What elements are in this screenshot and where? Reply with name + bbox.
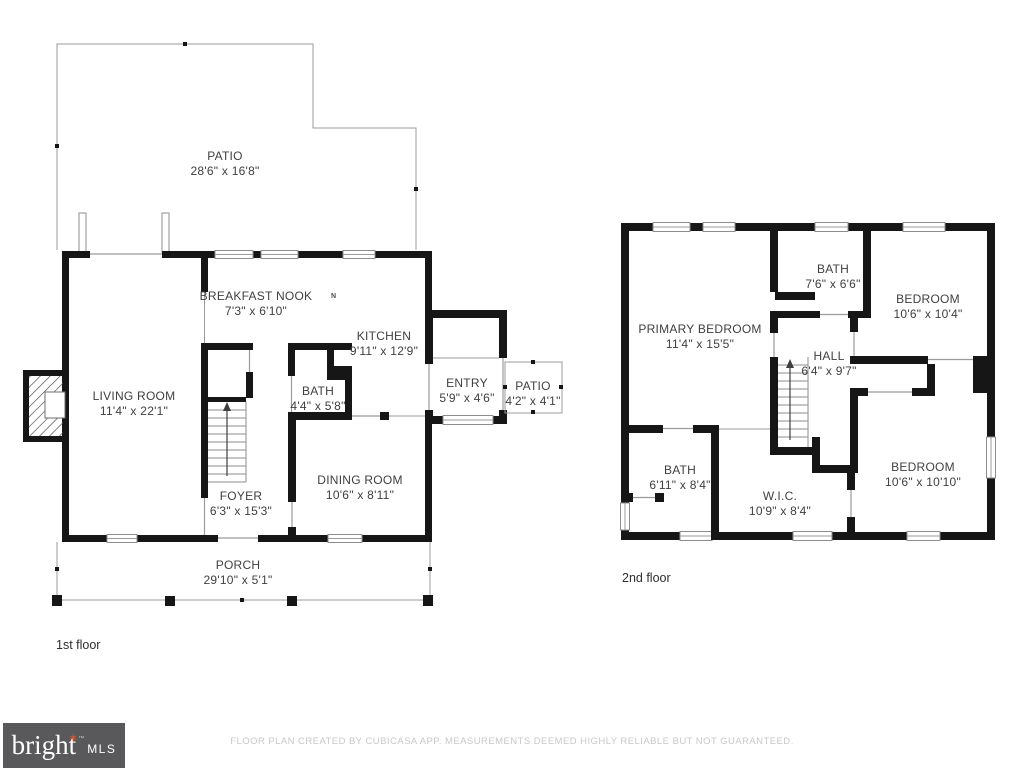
room-name: W.I.C.: [749, 489, 811, 504]
room-name: PORCH: [203, 558, 272, 573]
room-label-patio-small: PATIO 4'2" x 4'1": [505, 379, 560, 409]
room-dims: 6'3" x 15'3": [210, 504, 272, 519]
room-label-dining-room: DINING ROOM 10'6" x 8'11": [317, 473, 402, 503]
room-name: PRIMARY BEDROOM: [638, 322, 761, 337]
room-name: PATIO: [505, 379, 560, 394]
room-label-hall: HALL 6'4" x 9'7": [801, 349, 856, 379]
room-dims: 11'4" x 15'5": [638, 337, 761, 352]
room-label-wic: W.I.C. 10'9" x 8'4": [749, 489, 811, 519]
floor-label-first: 1st floor: [56, 638, 100, 652]
logo-suffix-text: MLS: [87, 742, 116, 756]
room-label-patio-large: PATIO 28'6" x 16'8": [190, 149, 259, 179]
staircase-first-floor: [208, 402, 246, 482]
room-name: PATIO: [190, 149, 259, 164]
room-dims: 6'11" x 8'4": [649, 478, 710, 493]
room-dims: 10'6" x 10'10": [885, 475, 961, 490]
bright-mls-logo: bright ✶ ™ MLS: [3, 723, 125, 768]
room-dims: 7'3" x 6'10": [200, 304, 313, 319]
logo-star-icon: ✶: [68, 731, 78, 745]
room-dims: 10'9" x 8'4": [749, 504, 811, 519]
room-name: HALL: [801, 349, 856, 364]
room-dims: 4'2" x 4'1": [505, 394, 560, 409]
room-dims: 4'4" x 5'8": [290, 399, 345, 414]
room-dims: 5'9" x 4'6": [439, 391, 494, 406]
room-dims: 29'10" x 5'1": [203, 573, 272, 588]
room-label-bath-bottom: BATH 6'11" x 8'4": [649, 463, 710, 493]
room-label-bath-first: BATH 4'4" x 5'8": [290, 384, 345, 414]
room-name: DINING ROOM: [317, 473, 402, 488]
room-name: LIVING ROOM: [93, 389, 176, 404]
room-label-foyer: FOYER 6'3" x 15'3": [210, 489, 272, 519]
floor-label-second: 2nd floor: [622, 571, 671, 585]
room-dims: 28'6" x 16'8": [190, 164, 259, 179]
room-label-primary-bedroom: PRIMARY BEDROOM 11'4" x 15'5": [638, 322, 761, 352]
room-name: BREAKFAST NOOK: [200, 289, 313, 304]
room-name: BATH: [290, 384, 345, 399]
room-dims: 9'11" x 12'9": [350, 344, 418, 359]
room-label-bedroom-bottom: BEDROOM 10'6" x 10'10": [885, 460, 961, 490]
floor-plan-page: PATIO 28'6" x 16'8" BREAKFAST NOOK 7'3" …: [0, 0, 1024, 768]
room-name: FOYER: [210, 489, 272, 504]
room-name: BEDROOM: [885, 460, 961, 475]
room-dims: 11'4" x 22'1": [93, 404, 176, 419]
room-name: BATH: [649, 463, 710, 478]
room-label-living-room: LIVING ROOM 11'4" x 22'1": [93, 389, 176, 419]
room-dims: 10'6" x 8'11": [317, 488, 402, 503]
room-label-kitchen: KITCHEN 9'11" x 12'9": [350, 329, 418, 359]
room-dims: 7'6" x 6'6": [805, 277, 860, 292]
room-label-porch: PORCH 29'10" x 5'1": [203, 558, 272, 588]
disclaimer-text: FLOOR PLAN CREATED BY CUBICASA APP. MEAS…: [230, 736, 793, 747]
logo-brand-text: bright: [12, 732, 77, 759]
room-dims: 10'6" x 10'4": [893, 307, 962, 322]
room-name: KITCHEN: [350, 329, 418, 344]
room-dims: 6'4" x 9'7": [801, 364, 856, 379]
room-name: BEDROOM: [893, 292, 962, 307]
room-name: BATH: [805, 262, 860, 277]
room-name: ENTRY: [439, 376, 494, 391]
fireplace-icon: [23, 370, 65, 442]
room-label-bedroom-top: BEDROOM 10'6" x 10'4": [893, 292, 962, 322]
room-label-breakfast-nook: BREAKFAST NOOK 7'3" x 6'10": [200, 289, 313, 319]
first-floor-plan: [23, 42, 563, 606]
logo-trademark: ™: [78, 736, 84, 742]
north-indicator: N: [331, 293, 336, 300]
room-label-bath-top: BATH 7'6" x 6'6": [805, 262, 860, 292]
room-label-entry: ENTRY 5'9" x 4'6": [439, 376, 494, 406]
